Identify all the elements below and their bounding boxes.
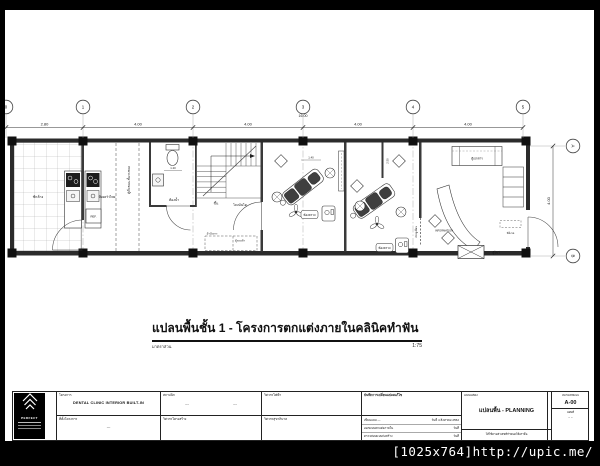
display-cabinet: ตู้โชว์ — [458, 246, 500, 259]
total-dim: 16.00 — [299, 114, 308, 118]
stool-icon — [355, 201, 365, 211]
grid-centerlines — [83, 138, 413, 253]
tb-double-line — [547, 392, 550, 440]
title-block: PERFECT โครงการ DENTAL CLINIC INTERIOR B… — [12, 391, 589, 441]
architect-label: สถาปนิก — [163, 393, 259, 398]
number-value: A-00 — [552, 400, 589, 406]
shoe-cabinet-label: ตู้รองเท้า — [235, 239, 246, 243]
tb-revision-cell: บันทึกการเปลี่ยนแปลงแก้ไข เขียนแบบ --- ว… — [361, 392, 461, 440]
exam1-label: ห้องตรวจ — [303, 213, 316, 217]
bay-dim-3: 4.00 — [354, 122, 363, 127]
fan-icon — [369, 216, 384, 229]
kitchen: REF. ห้องครัวไทย — [65, 171, 116, 228]
side-table-icon — [275, 155, 288, 168]
kitchen-label: ห้องครัวไทย — [99, 195, 116, 199]
watermark: [1025x764]http://upic.me/ — [392, 444, 593, 459]
pyramid-logo-icon — [21, 393, 39, 410]
tb-engineer-cell: วิศวกรไฟฟ้า วิศวกรสุขาภิบาล — [261, 392, 361, 440]
bench-area: ม้านั่งยาว ตู้รองเท้า — [205, 232, 257, 251]
bay-dim-1: 4.00 — [134, 122, 143, 127]
project-value: DENTAL CLINIC INTERIOR BUILT-IN — [59, 401, 158, 405]
exam1-dim: 1.40 — [308, 156, 314, 160]
tb-architect-cell: สถาปนิก --- --- วิศวกรโครงสร้าง — [160, 392, 261, 440]
information-label: INFORMATION — [435, 229, 453, 233]
side-dim: 4.00 — [546, 196, 551, 205]
drawing-note: ให้ใช้ตามตัวเลขที่กำหนดให้เท่านั้น — [462, 429, 551, 437]
sink-unit-icon — [396, 238, 409, 253]
toilet-icon — [166, 145, 179, 166]
exam2-dim: 2.50 — [386, 158, 390, 164]
storage-strip: ตู้เก็บของ+ชั้นวางของ — [116, 143, 139, 251]
side-table-icon — [351, 180, 364, 193]
location-label: ที่ตั้งโครงการ — [59, 417, 158, 422]
drawing-label: แบบแสดง — [464, 393, 549, 398]
stool-icon — [272, 192, 282, 202]
project-label: โครงการ — [59, 393, 158, 398]
bay-dim-4: 4.00 — [464, 122, 473, 127]
basin-icon — [153, 174, 164, 186]
stool-icon — [429, 215, 442, 228]
doors — [53, 202, 559, 250]
drawing-sheet: ซักล้าง — [5, 10, 594, 441]
bay-dim-0: 2.80 — [41, 122, 50, 127]
drawing-value: แปลนพื้น - PLANNING — [464, 407, 549, 415]
sanitary-label: วิศวกรสุขาภิบาล — [264, 417, 359, 422]
stool-icon — [442, 232, 455, 245]
floor-plan: ซักล้าง — [5, 10, 594, 441]
grid-markers-top: 0 1 2 3 4 5 2.80 4.00 4.00 4.00 4.00 16.… — [5, 100, 530, 138]
logo-line — [18, 425, 41, 427]
revision-label: บันทึกการเปลี่ยนแปลงแก้ไข — [364, 393, 459, 398]
exam-room-2: 2.50 ห้องตรวจ ประตูเลื่อน — [347, 155, 421, 253]
dental-chair-icon — [276, 167, 325, 210]
architect-value2: --- — [233, 402, 237, 406]
drawing-title-block: แปลนพื้นชั้น 1 - โครงการตกแต่งภายในคลินิ… — [152, 319, 422, 350]
sheet-value: -- -- — [552, 415, 589, 419]
grid-markers-right: A B 4.00 — [530, 139, 580, 263]
architect-value: --- — [185, 402, 189, 406]
document-cabinet: ตู้เอกสาร — [452, 147, 502, 166]
revision-row: ตรวจสอบแบบก่อสร้าง วันที่ — [362, 432, 461, 440]
exam-room-1: 1.40 ห้องตรวจ — [272, 151, 344, 221]
revision-row: เขียนแบบ --- วันที่ 4 สิงหาคม 2552 — [362, 416, 461, 424]
logo-line — [18, 422, 41, 424]
electrical-label: วิศวกรไฟฟ้า — [264, 393, 359, 398]
bathroom: 1.20 ห้องน้ำ — [153, 145, 183, 203]
logo-line — [18, 428, 41, 430]
tb-project-cell: โครงการ DENTAL CLINIC INTERIOR BUILT-IN … — [56, 392, 160, 440]
refrigerator-icon: REF. — [86, 209, 101, 223]
bath-dim: 1.20 — [170, 166, 176, 170]
counter-desk — [339, 151, 345, 191]
side-table-icon — [393, 155, 406, 168]
bay-dim-2: 4.00 — [244, 122, 253, 127]
location-value: --- — [59, 425, 158, 429]
scale-label: มาตราส่วน — [152, 343, 171, 350]
display-cabinet-label: ตู้โชว์ — [492, 251, 500, 255]
stair-hall-label: โถงบันได — [233, 202, 247, 207]
stool-icon — [396, 207, 406, 217]
sliding-door-label: ประตูเลื่อน — [414, 226, 418, 238]
stairs — [197, 143, 261, 198]
waiting-bench — [500, 221, 521, 228]
sink-unit-icon — [322, 206, 335, 221]
tb-drawing-cell: แบบแสดง แปลนพื้น - PLANNING ให้ใช้ตามตัว… — [461, 392, 551, 440]
stair-up-label: ขึ้น — [214, 201, 219, 206]
number-label: หมายเลขแบบ — [552, 393, 589, 398]
exam2-label: ห้องตรวจ — [378, 246, 391, 250]
grid-row-A: A — [570, 145, 575, 148]
structural-label: วิศวกรโครงสร้าง — [163, 417, 259, 422]
drawing-title: แปลนพื้นชั้น 1 - โครงการตกแต่งภายในคลินิ… — [152, 319, 422, 342]
logo-text: PERFECT — [14, 416, 45, 420]
bathroom-label: ห้องน้ำ — [169, 197, 179, 202]
waiting-label: ที่นั่งรอ — [506, 231, 514, 235]
document-cabinet-label: ตู้เอกสาร — [471, 157, 483, 161]
bench-label: ม้านั่งยาว — [206, 232, 217, 236]
grid-row-B: B — [570, 255, 575, 258]
company-logo: PERFECT — [14, 393, 45, 439]
scale-value: 1:75 — [412, 343, 422, 350]
screenshot-root: { "watermark": {"text": "[1025x764]http:… — [0, 0, 600, 466]
svg-text:REF.: REF. — [90, 215, 96, 219]
stool-icon — [325, 168, 335, 178]
reception: INFORMATION ตู้เอกสาร ที่นั่งรอ ตู้โชว์ — [429, 147, 524, 259]
tb-number-cell: หมายเลขแบบ A-00 แผ่นที่ -- -- — [551, 392, 589, 440]
wash-area-label: ซักล้าง — [33, 194, 44, 199]
shelf-unit — [503, 167, 524, 207]
storage-label: ตู้เก็บของ+ชั้นวางของ — [125, 165, 131, 194]
revision-row: ออกแบบตกแต่งภายใน วันที่ — [362, 424, 461, 432]
information-counter — [437, 185, 480, 250]
